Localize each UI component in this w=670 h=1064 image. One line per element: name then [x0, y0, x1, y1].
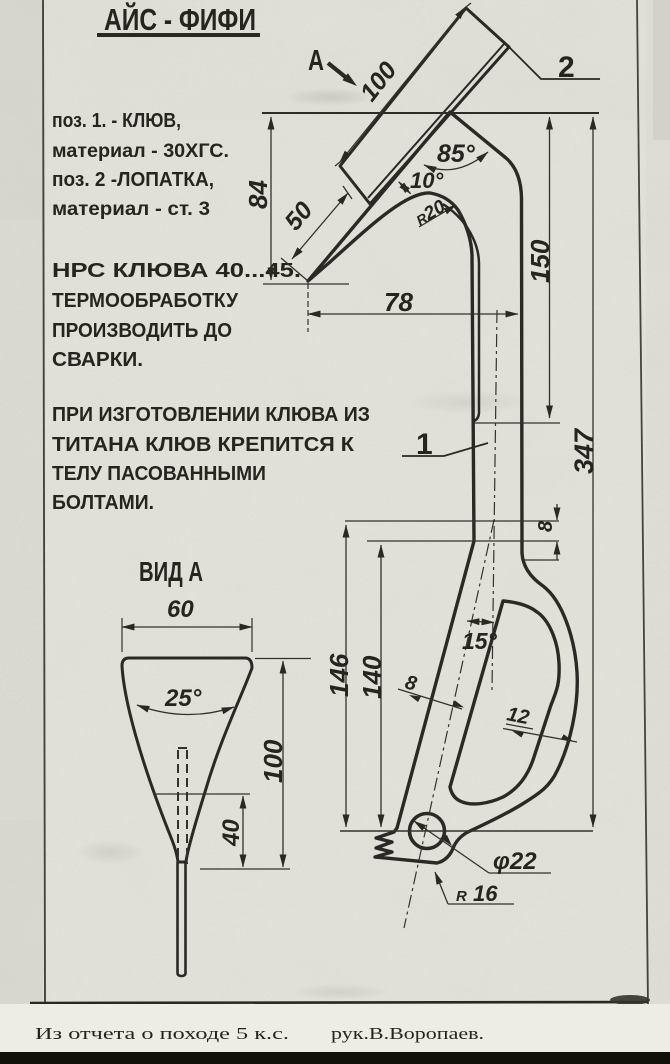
svg-text:12: 12	[505, 703, 531, 729]
svg-text:материал - ст. 3: материал - ст. 3	[52, 199, 210, 220]
svg-text:ТЕРМООБРАБОТКУ: ТЕРМООБРАБОТКУ	[52, 290, 239, 312]
svg-text:φ22: φ22	[493, 848, 537, 875]
svg-text:поз. 2 -ЛОПАТКА,: поз. 2 -ЛОПАТКА,	[52, 169, 214, 191]
svg-text:150: 150	[525, 239, 555, 283]
svg-text:ВИД А: ВИД А	[139, 556, 203, 587]
svg-text:ТИТАНА КЛЮВ КРЕПИТСЯ К: ТИТАНА КЛЮВ КРЕПИТСЯ К	[52, 434, 355, 456]
svg-text:146: 146	[324, 653, 354, 697]
svg-text:60: 60	[167, 596, 194, 623]
svg-text:10°: 10°	[410, 168, 443, 193]
svg-text:рук.В.Воропаев.: рук.В.Воропаев.	[331, 1024, 484, 1043]
svg-text:ПРИ ИЗГОТОВЛЕНИИ КЛЮВА ИЗ: ПРИ ИЗГОТОВЛЕНИИ КЛЮВА ИЗ	[52, 404, 370, 426]
svg-text:АЙС - ФИФИ: АЙС - ФИФИ	[104, 1, 256, 37]
svg-text:140: 140	[357, 655, 387, 699]
svg-text:100: 100	[258, 739, 288, 783]
svg-text:СВАРКИ.: СВАРКИ.	[52, 349, 143, 371]
svg-text:поз. 1. - КЛЮВ,: поз. 1. - КЛЮВ,	[52, 110, 181, 132]
svg-text:ТЕЛУ ПАСОВАННЫМИ: ТЕЛУ ПАСОВАННЫМИ	[52, 463, 266, 485]
svg-text:85°: 85°	[437, 140, 476, 168]
svg-text:25°: 25°	[164, 685, 202, 712]
svg-text:84: 84	[243, 180, 273, 209]
svg-text:ПРОИЗВОДИТЬ ДО: ПРОИЗВОДИТЬ ДО	[52, 320, 232, 342]
svg-text:Из отчета о походе 5 к.с.: Из отчета о походе 5 к.с.	[35, 1024, 289, 1043]
svg-text:А: А	[308, 45, 324, 77]
svg-text:347: 347	[569, 427, 599, 474]
svg-text:40: 40	[218, 819, 245, 847]
svg-text:8: 8	[535, 520, 557, 532]
svg-text:материал - 30ХГС.: материал - 30ХГС.	[52, 141, 229, 162]
svg-text:78: 78	[384, 287, 413, 317]
svg-text:НРС КЛЮВА 40...45.: НРС КЛЮВА 40...45.	[52, 260, 301, 282]
svg-text:БОЛТАМИ.: БОЛТАМИ.	[52, 492, 154, 514]
svg-text:15°: 15°	[462, 628, 498, 654]
